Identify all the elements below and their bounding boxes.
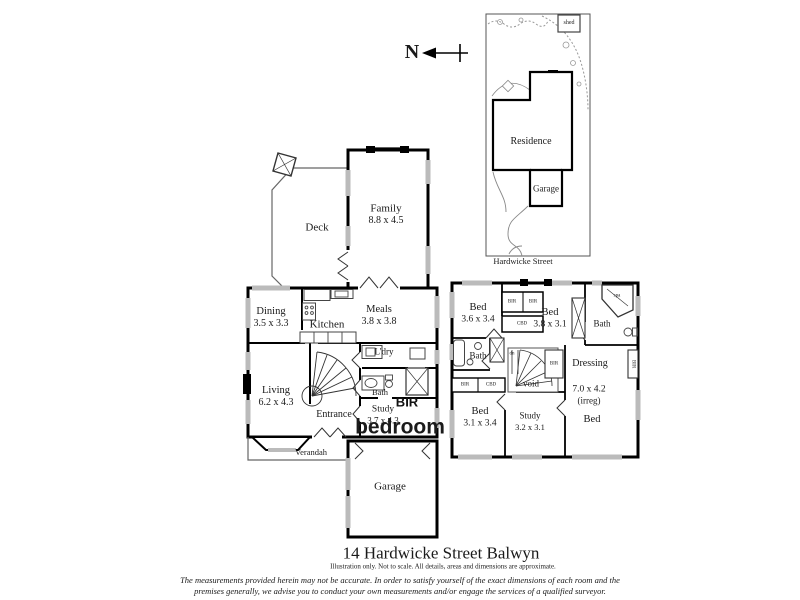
window xyxy=(512,455,542,460)
room-label-meals: Meals xyxy=(366,305,392,316)
room-label-study-first: Study xyxy=(519,412,540,421)
page-title: 14 Hardwicke Street Balwyn xyxy=(343,545,540,562)
window xyxy=(450,292,455,318)
bir-label: BIR xyxy=(631,360,636,368)
window xyxy=(246,352,251,370)
room-dims-family: 8.8 x 4.5 xyxy=(369,216,404,226)
fireplace xyxy=(243,374,251,394)
room-label-dining: Dining xyxy=(256,307,285,318)
north-label: N xyxy=(405,42,419,62)
garage-door-panel xyxy=(346,458,351,490)
room-dims-bed4-irreg: (irreg) xyxy=(578,397,601,406)
window xyxy=(426,246,431,274)
room-dims-living: 6.2 x 4.3 xyxy=(259,398,294,408)
room-label-bath-left: Bath xyxy=(470,352,487,361)
site-garage-label: Garage xyxy=(533,185,559,194)
window xyxy=(572,455,622,460)
room-label-laundry: L'dry xyxy=(374,348,393,357)
overlay-bedroom-label: bedroom xyxy=(355,417,445,438)
window xyxy=(592,281,602,286)
site-residence-label: Residence xyxy=(510,137,551,147)
stove xyxy=(303,303,316,320)
room-label-verandah: Verandah xyxy=(295,448,327,457)
window xyxy=(346,226,351,246)
room-label-kitchen: Kitchen xyxy=(310,320,345,331)
bir-label: BIR xyxy=(508,300,516,305)
room-label-bath-right: Bath xyxy=(594,320,611,329)
window xyxy=(458,455,492,460)
window xyxy=(636,390,641,420)
room-dims-meals: 3.8 x 3.8 xyxy=(362,317,397,327)
floorplan-page: N shed Residence Garage Hardwicke Street… xyxy=(0,0,800,600)
room-label-bed2: Bed xyxy=(542,308,559,319)
room-label-entrance: Entrance xyxy=(316,410,352,420)
window xyxy=(246,400,251,424)
window xyxy=(435,296,440,328)
footer-disclaimer-line1: The measurements provided herein may not… xyxy=(180,576,620,585)
void-label: void xyxy=(523,380,539,389)
window xyxy=(246,298,251,328)
room-label-garage-ground: Garage xyxy=(374,482,406,493)
floorplan-drawing xyxy=(0,0,800,600)
window xyxy=(252,286,290,291)
site-plan xyxy=(486,14,590,256)
kitchen-bench xyxy=(304,290,330,301)
footer-disclaimer-line2: premises generally, we advise you to con… xyxy=(194,587,606,596)
window xyxy=(450,410,455,438)
bathtub xyxy=(454,340,465,366)
cbd-label: CBD xyxy=(486,383,496,388)
site-street-label: Hardwicke Street xyxy=(493,257,552,266)
room-dims-bed3: 3.1 x 3.4 xyxy=(463,419,496,429)
bir-label: BIR xyxy=(529,300,537,305)
window xyxy=(435,350,440,364)
room-dims-bed1: 3.6 x 3.4 xyxy=(461,315,494,325)
room-label-bed4: Bed xyxy=(584,415,601,426)
bir-label: BIR xyxy=(461,383,469,388)
room-label-bed3: Bed xyxy=(472,407,489,418)
window xyxy=(636,296,641,316)
garage-door-panel xyxy=(346,496,351,528)
overlay-bir-label: BIR xyxy=(396,396,418,409)
dn-label: dn xyxy=(510,352,515,357)
window xyxy=(346,170,351,196)
ground-floor-plan xyxy=(243,146,440,537)
cbd-label: CBD xyxy=(517,322,527,327)
site-shed-label: shed xyxy=(564,20,575,26)
footer-subtitle: Illustration only. Not to scale. All det… xyxy=(330,564,556,571)
bir-label: BIR xyxy=(550,362,558,367)
room-dims-study-first: 3.2 x 3.1 xyxy=(515,423,545,432)
room-label-bath-ground: Bath xyxy=(372,388,388,397)
room-dims-dining: 3.5 x 3.3 xyxy=(254,319,289,329)
spa-label: spa xyxy=(614,294,621,299)
room-dims-bed4: 7.0 x 4.2 xyxy=(572,385,605,395)
north-arrow xyxy=(422,44,468,62)
room-label-bed1: Bed xyxy=(470,303,487,314)
room-label-living: Living xyxy=(262,386,290,397)
window xyxy=(462,281,492,286)
room-label-study-ground: Study xyxy=(372,405,394,415)
room-label-dressing: Dressing xyxy=(572,359,608,369)
window xyxy=(426,160,431,184)
room-dims-bed2: 3.8 x 3.1 xyxy=(533,320,566,330)
room-label-family: Family xyxy=(370,204,401,215)
room-label-deck: Deck xyxy=(305,223,328,234)
